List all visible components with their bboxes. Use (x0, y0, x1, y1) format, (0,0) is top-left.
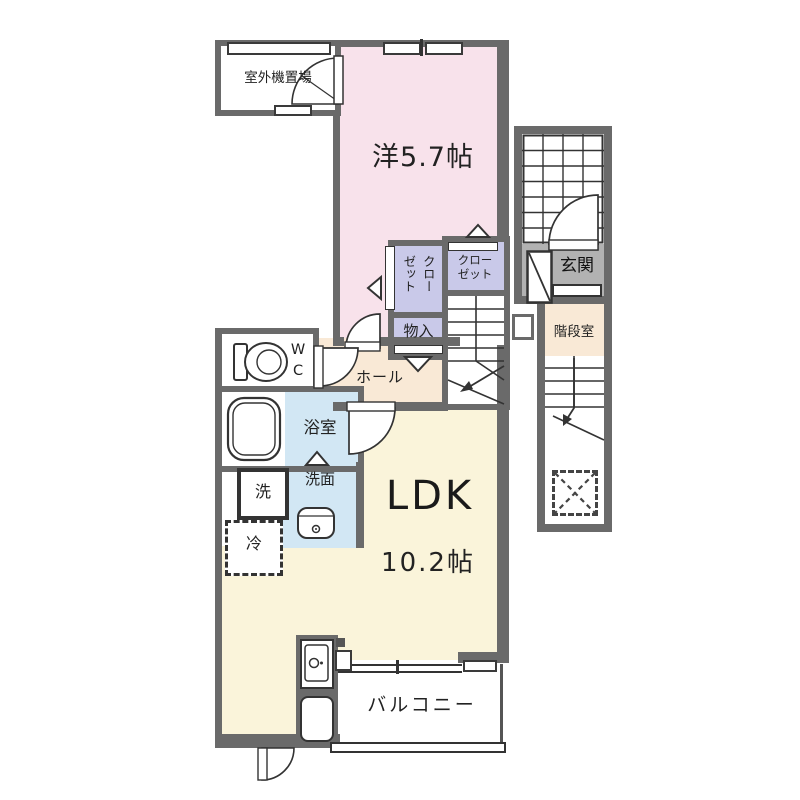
stairwell-label: 階段室 (541, 324, 607, 340)
ldk-size-label: 10.2帖 (360, 548, 496, 579)
stairs-arrow-icon (545, 356, 604, 452)
wc-label: W C (285, 340, 311, 382)
storage-slider (394, 345, 443, 354)
entrance-door-swing-icon (546, 194, 604, 254)
folding-door-marker-icon (303, 448, 331, 468)
wall-left (215, 328, 222, 748)
closet-right-label: クローゼット (453, 254, 497, 282)
window-icon (463, 660, 497, 672)
closet-left-label: クローゼット (399, 250, 438, 298)
window-icon (383, 42, 421, 55)
void-cross-icon (555, 473, 595, 513)
ldk-label: LDK (368, 472, 492, 520)
closet-slider (385, 246, 395, 310)
wc-label-line1: W (285, 340, 311, 361)
folding-door-marker-icon (364, 274, 384, 302)
bathtub-icon (225, 395, 283, 463)
door-swing-icon (345, 400, 397, 458)
balcony-side-line (500, 664, 503, 742)
window-icon (425, 42, 463, 55)
washbasin-icon (295, 500, 337, 542)
closet-slider (448, 242, 498, 251)
laundry-label: 洗 (241, 482, 285, 501)
bath-label: 浴室 (288, 418, 352, 438)
storage-label: 物入 (394, 322, 443, 340)
balcony-partition-square (336, 638, 345, 647)
void-cross-box (552, 470, 598, 516)
washroom-label: 洗面 (287, 470, 353, 488)
entrance-label: 玄関 (552, 256, 602, 276)
stairs-icon (448, 296, 504, 404)
toilet-icon (228, 338, 292, 386)
western-room-label: 洋5.7帖 (348, 142, 498, 174)
folding-door-marker-icon (464, 222, 492, 240)
hall-label: ホール (340, 368, 420, 386)
fridge-label: 冷 (229, 534, 279, 553)
balcony-door (335, 650, 352, 671)
window-mullion (420, 39, 423, 56)
shoe-cabinet-icon (526, 250, 553, 304)
wall-washroom-right (356, 462, 364, 548)
balcony-rail (330, 742, 506, 753)
balcony-slider (338, 664, 462, 673)
entrance-step (552, 284, 602, 297)
balcony-label: バルコニー (350, 694, 494, 717)
kitchen-sink-icon (298, 637, 336, 745)
wall-hall-bottom-right (394, 402, 448, 411)
outdoor-unit-label: 室外機置場 (224, 70, 332, 86)
wall-notch (512, 314, 534, 340)
door-swing-icon (256, 746, 296, 784)
floor-plan: 室外機置場 洋5.7帖 クローゼット クローゼット 物入 ホール W C 浴室 … (0, 0, 800, 800)
wc-label-line2: C (285, 361, 311, 382)
balcony-slider-tick (396, 660, 399, 674)
